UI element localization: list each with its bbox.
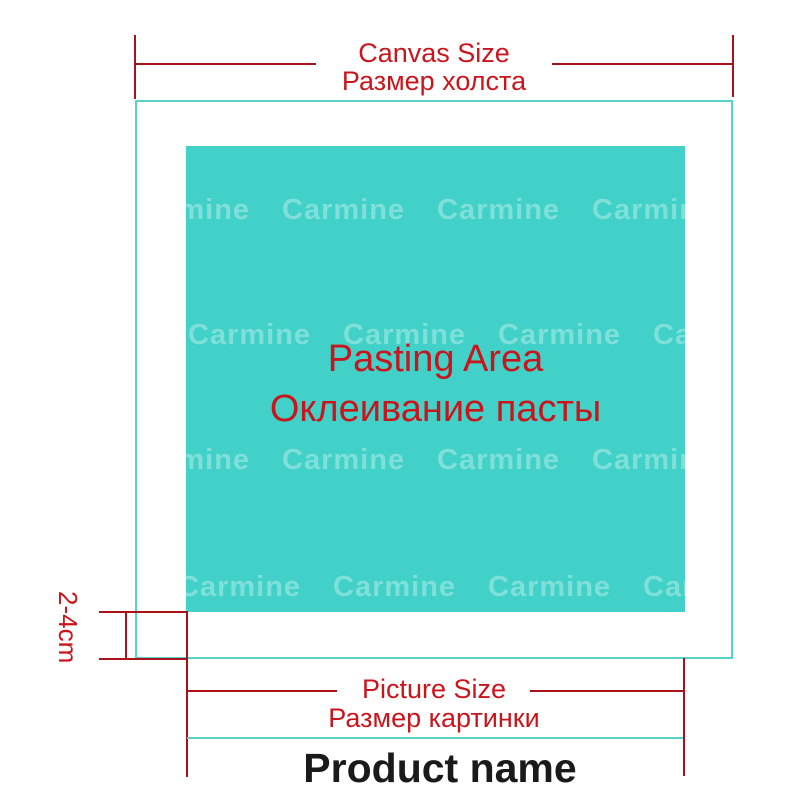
watermark-text: Carmine — [437, 444, 560, 477]
picture-size-label-ru: Размер картинки — [328, 704, 539, 733]
margin-ext-line-bottom — [99, 658, 187, 660]
canvas-size-label-ru: Размер холста — [342, 67, 526, 95]
picture-dim-line-right — [530, 690, 684, 692]
picture-dim-tick-right — [683, 658, 685, 776]
watermark-text: Carmine — [437, 194, 560, 227]
picture-size-label: Picture Size Размер картинки — [328, 675, 539, 733]
picture-bottom-line — [187, 737, 683, 739]
margin-ext-line-top — [99, 611, 187, 613]
watermark-text: Carmine — [282, 194, 405, 227]
canvas-dim-line-left — [135, 63, 316, 65]
watermark-text: Carmine — [186, 194, 250, 227]
watermark-text: Carmine — [488, 571, 611, 604]
margin-label: 2-4cm — [52, 591, 83, 663]
product-name: Product name — [303, 744, 576, 792]
watermark-text: Carmine — [282, 444, 405, 477]
pasting-area-label-ru: Оклеивание пасты — [186, 384, 685, 434]
picture-size-label-en: Picture Size — [328, 675, 539, 704]
watermark-text: Carmine — [333, 571, 456, 604]
canvas-dim-line-right — [552, 63, 733, 65]
watermark-text: Carmine — [592, 444, 685, 477]
pasting-area: CarmineCarmineCarmineCarmineCarmineCarmi… — [186, 146, 685, 612]
canvas-size-label: Canvas Size Размер холста — [342, 39, 526, 95]
product-size-diagram: Canvas Size Размер холста CarmineCarmine… — [0, 0, 800, 800]
watermark-text: Carmine — [643, 571, 685, 604]
watermark-text: Carmine — [186, 444, 250, 477]
picture-dim-tick-left — [186, 611, 188, 777]
pasting-area-label-en: Pasting Area — [186, 334, 685, 384]
pasting-area-label: Pasting Area Оклеивание пасты — [186, 334, 685, 434]
picture-dim-line-left — [187, 690, 337, 692]
canvas-size-label-en: Canvas Size — [342, 39, 526, 67]
watermark-text: Carmine — [592, 194, 685, 227]
canvas-dim-tick-left — [134, 35, 136, 99]
watermark-text: Carmine — [186, 571, 301, 604]
canvas-dim-tick-right — [732, 35, 734, 97]
margin-dim-line — [125, 611, 127, 660]
